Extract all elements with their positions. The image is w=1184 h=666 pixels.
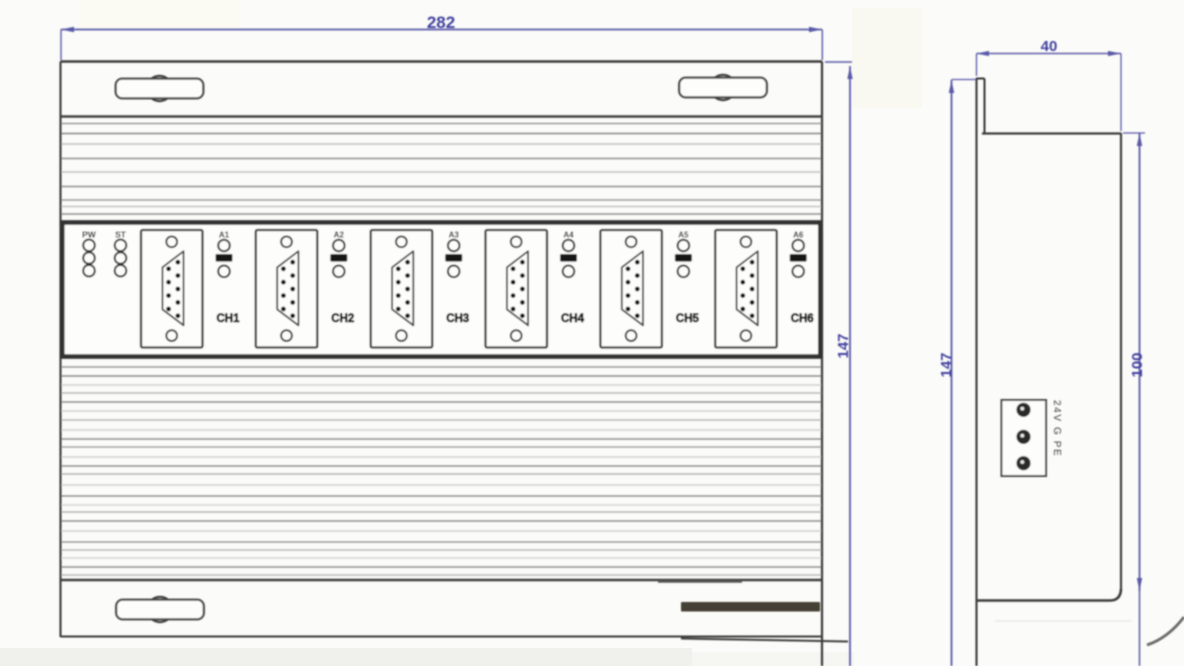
svg-text:147: 147: [835, 333, 852, 358]
svg-text:CH1: CH1: [216, 313, 240, 325]
svg-text:40: 40: [1041, 38, 1058, 55]
svg-text:100: 100: [1129, 352, 1146, 377]
svg-text:A3: A3: [449, 231, 460, 240]
svg-text:147: 147: [938, 352, 955, 377]
svg-text:CH5: CH5: [676, 313, 700, 325]
svg-text:A5: A5: [678, 231, 689, 240]
svg-text:CH6: CH6: [791, 313, 814, 325]
svg-text:ST: ST: [115, 230, 127, 240]
svg-text:24V G PE: 24V G PE: [1051, 400, 1062, 457]
svg-text:A1: A1: [219, 231, 230, 240]
svg-text:282: 282: [427, 13, 455, 32]
svg-text:PW: PW: [82, 230, 97, 240]
svg-text:A2: A2: [334, 231, 345, 240]
svg-text:CH2: CH2: [331, 313, 354, 325]
svg-text:A4: A4: [563, 231, 574, 240]
svg-text:CH4: CH4: [561, 313, 585, 325]
svg-text:A6: A6: [793, 231, 804, 240]
svg-text:CH3: CH3: [446, 313, 469, 325]
